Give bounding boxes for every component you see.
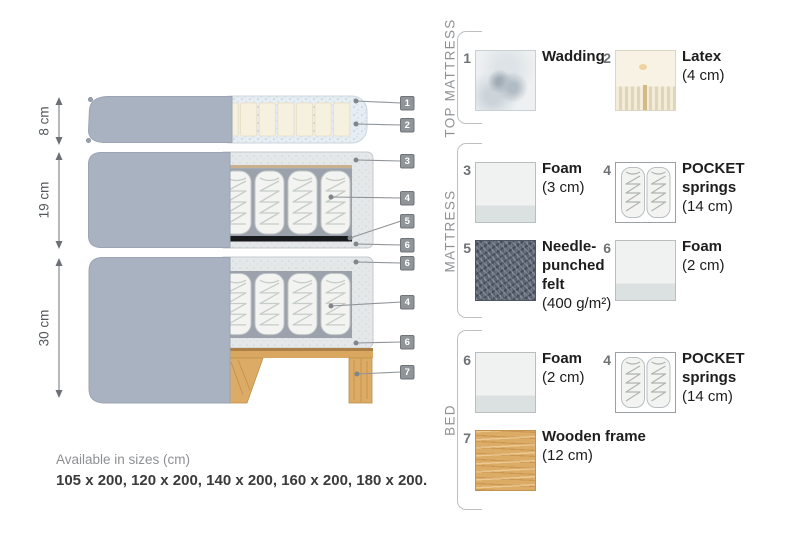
item-number: 2	[589, 50, 611, 66]
wooden-leg-right	[349, 358, 372, 403]
material-name: Wooden frame	[542, 427, 672, 446]
item-number: 5	[449, 240, 471, 256]
callout-3: 3	[401, 155, 415, 169]
callout-6b: 6	[401, 257, 415, 271]
mattress-fabric-cover	[89, 153, 231, 248]
material-detail: (14 cm)	[682, 197, 800, 216]
sizes-title: Available in sizes (cm)	[56, 452, 427, 467]
material-name: Latex	[682, 47, 800, 66]
legend-item-pocket-springs: 4 POCKET springs (1	[615, 352, 676, 413]
middle-mattress	[89, 152, 374, 248]
svg-text:6: 6	[405, 258, 410, 269]
callout-6c: 6	[401, 336, 415, 350]
callout-4: 4	[401, 192, 415, 206]
section-title: MATTRESS	[443, 189, 458, 272]
legend-section-bed: BED 6 Foam (2 cm) 4	[443, 330, 800, 510]
svg-text:6: 6	[405, 337, 410, 348]
pocket-spring	[288, 273, 317, 334]
top-mattress	[86, 96, 367, 143]
bed-base	[89, 257, 373, 403]
pocket-springs-swatch-icon	[615, 162, 676, 223]
material-name: Foam	[682, 237, 800, 256]
arrow-up-icon	[56, 152, 63, 160]
legend-item-wadding: 1 Wadding	[475, 50, 536, 111]
dimension-label: 8 cm	[37, 106, 52, 135]
item-text: Latex (4 cm)	[682, 47, 800, 85]
svg-text:4: 4	[405, 193, 411, 204]
pocket-springs-drawing	[616, 353, 675, 412]
svg-text:3: 3	[405, 156, 410, 167]
svg-text:4: 4	[405, 297, 411, 308]
arrow-down-icon	[56, 137, 63, 145]
arrow-up-icon	[56, 258, 63, 266]
pocket-springs-drawing	[616, 163, 675, 222]
callout-5: 5	[401, 215, 415, 229]
legend-item-foam-2cm: 6 Foam (2 cm)	[475, 352, 536, 413]
legend-item-wooden-frame: 7 Wooden frame (12 cm)	[475, 430, 536, 491]
item-text: POCKET springs (14 cm)	[682, 159, 800, 216]
foam-swatch-icon	[615, 240, 676, 301]
dimension-mattress: 19 cm	[37, 152, 63, 249]
item-number: 6	[449, 352, 471, 368]
dimension-bed: 30 cm	[37, 258, 63, 398]
svg-text:6: 6	[405, 240, 410, 251]
latex-blocks	[222, 103, 350, 136]
materials-legend: TOP MATTRESS 1 Wadding 2 Latex (4 cm)	[443, 0, 800, 533]
material-name: POCKET springs	[682, 349, 800, 387]
fabric-button	[86, 138, 90, 142]
dimension-label: 19 cm	[37, 182, 52, 219]
wooden-rail-edge	[220, 348, 373, 351]
bed-construction-infographic: 8 cm 19 cm 30 cm	[0, 0, 800, 533]
legend-section-mattress: MATTRESS 3 Foam (3 cm) 4	[443, 143, 800, 318]
material-name: POCKET springs	[682, 159, 800, 197]
material-detail: (2 cm)	[682, 256, 800, 275]
bed-fabric-cover	[89, 258, 230, 404]
callout-7: 7	[401, 366, 415, 380]
needle-punched-felt-layer	[218, 236, 352, 242]
pocket-spring	[321, 171, 350, 234]
callout-4b: 4	[401, 296, 415, 310]
arrow-down-icon	[56, 241, 63, 249]
item-number: 4	[589, 162, 611, 178]
section-title: TOP MATTRESS	[443, 18, 458, 137]
item-number: 3	[449, 162, 471, 178]
material-detail: (14 cm)	[682, 387, 800, 406]
pocket-spring	[255, 273, 284, 334]
pocket-spring	[321, 273, 350, 334]
foam-swatch-icon	[475, 352, 536, 413]
fabric-button	[88, 97, 92, 101]
legend-item-foam-2cm: 6 Foam (2 cm)	[615, 240, 676, 301]
material-detail: (4 cm)	[682, 66, 800, 85]
felt-swatch-icon	[475, 240, 536, 301]
latex-swatch-icon	[615, 50, 676, 111]
legend-item-foam-3cm: 3 Foam (3 cm)	[475, 162, 536, 223]
foam-layer-divider	[218, 165, 352, 168]
wadding-swatch-icon	[475, 50, 536, 111]
svg-text:1: 1	[405, 98, 411, 109]
svg-text:2: 2	[405, 120, 410, 131]
available-sizes-note: Available in sizes (cm) 105 x 200, 120 x…	[56, 452, 427, 489]
arrow-up-icon	[56, 97, 63, 105]
pocket-springs-swatch-icon	[615, 352, 676, 413]
dimension-label: 30 cm	[37, 310, 52, 347]
callout-chips: 1 2 3 4 5 6 6	[401, 97, 415, 380]
pocket-spring	[288, 171, 317, 234]
legend-item-latex: 2 Latex (4 cm)	[615, 50, 676, 111]
svg-text:5: 5	[405, 216, 411, 227]
wood-swatch-icon	[475, 430, 536, 491]
sizes-values: 105 x 200, 120 x 200, 140 x 200, 160 x 2…	[56, 472, 427, 489]
svg-text:7: 7	[405, 367, 410, 378]
foam-swatch-icon	[475, 162, 536, 223]
callout-2: 2	[401, 119, 415, 133]
legend-item-felt: 5 Needle- punched felt (400 g/m²)	[475, 240, 536, 301]
pocket-spring	[255, 171, 284, 234]
item-number: 6	[589, 240, 611, 256]
callout-6: 6	[401, 239, 415, 253]
top-mattress-fabric-cover	[89, 97, 233, 143]
item-number: 1	[449, 50, 471, 66]
item-text: Foam (2 cm)	[682, 237, 800, 275]
item-number: 4	[589, 352, 611, 368]
arrow-down-icon	[56, 390, 63, 398]
legend-item-pocket-springs: 4 POCKET springs (1	[615, 162, 676, 223]
legend-section-top-mattress: TOP MATTRESS 1 Wadding 2 Latex (4 cm)	[443, 31, 800, 124]
material-detail: (12 cm)	[542, 446, 672, 465]
item-text: Wooden frame (12 cm)	[542, 427, 672, 465]
callout-1: 1	[401, 97, 415, 111]
item-number: 7	[449, 430, 471, 446]
dimension-top-mattress: 8 cm	[37, 97, 63, 145]
item-text: POCKET springs (14 cm)	[682, 349, 800, 406]
